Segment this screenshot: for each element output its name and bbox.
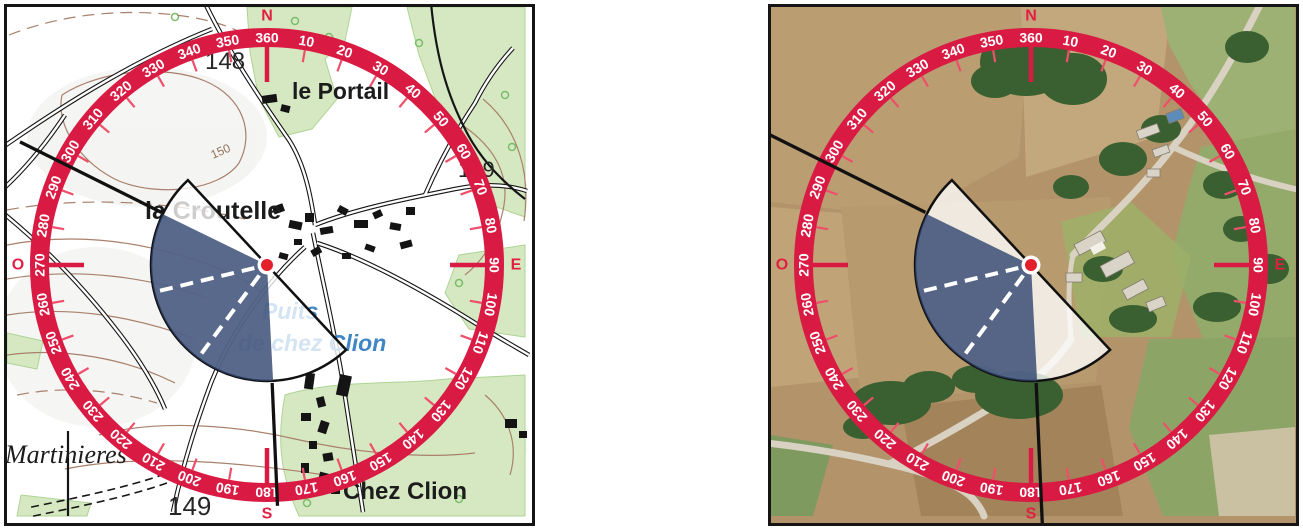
degree-label: 360 [255, 30, 279, 46]
place-label-le-portail: le Portail [292, 78, 389, 104]
degree-label: 270 [32, 253, 48, 277]
degree-label: 80 [482, 216, 500, 234]
cardinal-letter-S: S [262, 506, 273, 523]
place-label-martinieres: Martinieres [7, 440, 127, 469]
degree-label: 10 [297, 32, 315, 50]
cardinal-letter-E: E [1275, 257, 1286, 274]
topographic-map-panel: 148 le Portail 149 150 la Croutelle Puit… [4, 4, 535, 526]
spot-height-149-south: 149 [168, 491, 211, 521]
degree-label: 90 [1251, 257, 1267, 273]
degree-label: 360 [1019, 30, 1043, 46]
cardinal-letter-N: N [1025, 8, 1037, 25]
cardinal-letter-O: O [776, 257, 788, 274]
aerial-photo-panel: 1020304050607080901001101201301401501601… [768, 4, 1299, 526]
cardinal-letter-S: S [1026, 506, 1037, 523]
degree-label: 270 [796, 253, 812, 277]
degree-label: 10 [1061, 32, 1079, 50]
compass-center-dot [261, 259, 273, 271]
cardinal-letter-N: N [261, 8, 273, 25]
cardinal-letter-O: O [12, 257, 24, 274]
compass-center-dot [1025, 259, 1037, 271]
aerial-photo: 1020304050607080901001101201301401501601… [771, 7, 1296, 523]
degree-label: 80 [1246, 216, 1264, 234]
cardinal-letter-E: E [511, 257, 522, 274]
degree-label: 90 [487, 257, 503, 273]
topographic-map: 148 le Portail 149 150 la Croutelle Puit… [7, 7, 532, 523]
